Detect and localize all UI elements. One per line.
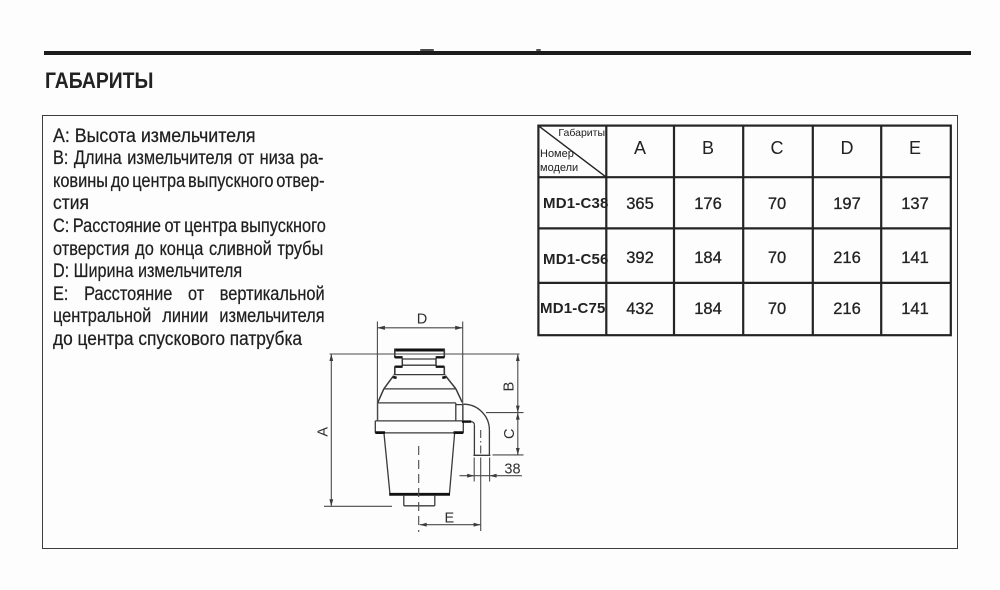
- svg-text:38: 38: [504, 462, 520, 478]
- svg-text:C: C: [502, 429, 518, 439]
- svg-text:B: B: [502, 382, 518, 392]
- svg-text:А: А: [316, 427, 332, 437]
- svg-text:D: D: [417, 312, 427, 328]
- svg-text:E: E: [444, 511, 454, 527]
